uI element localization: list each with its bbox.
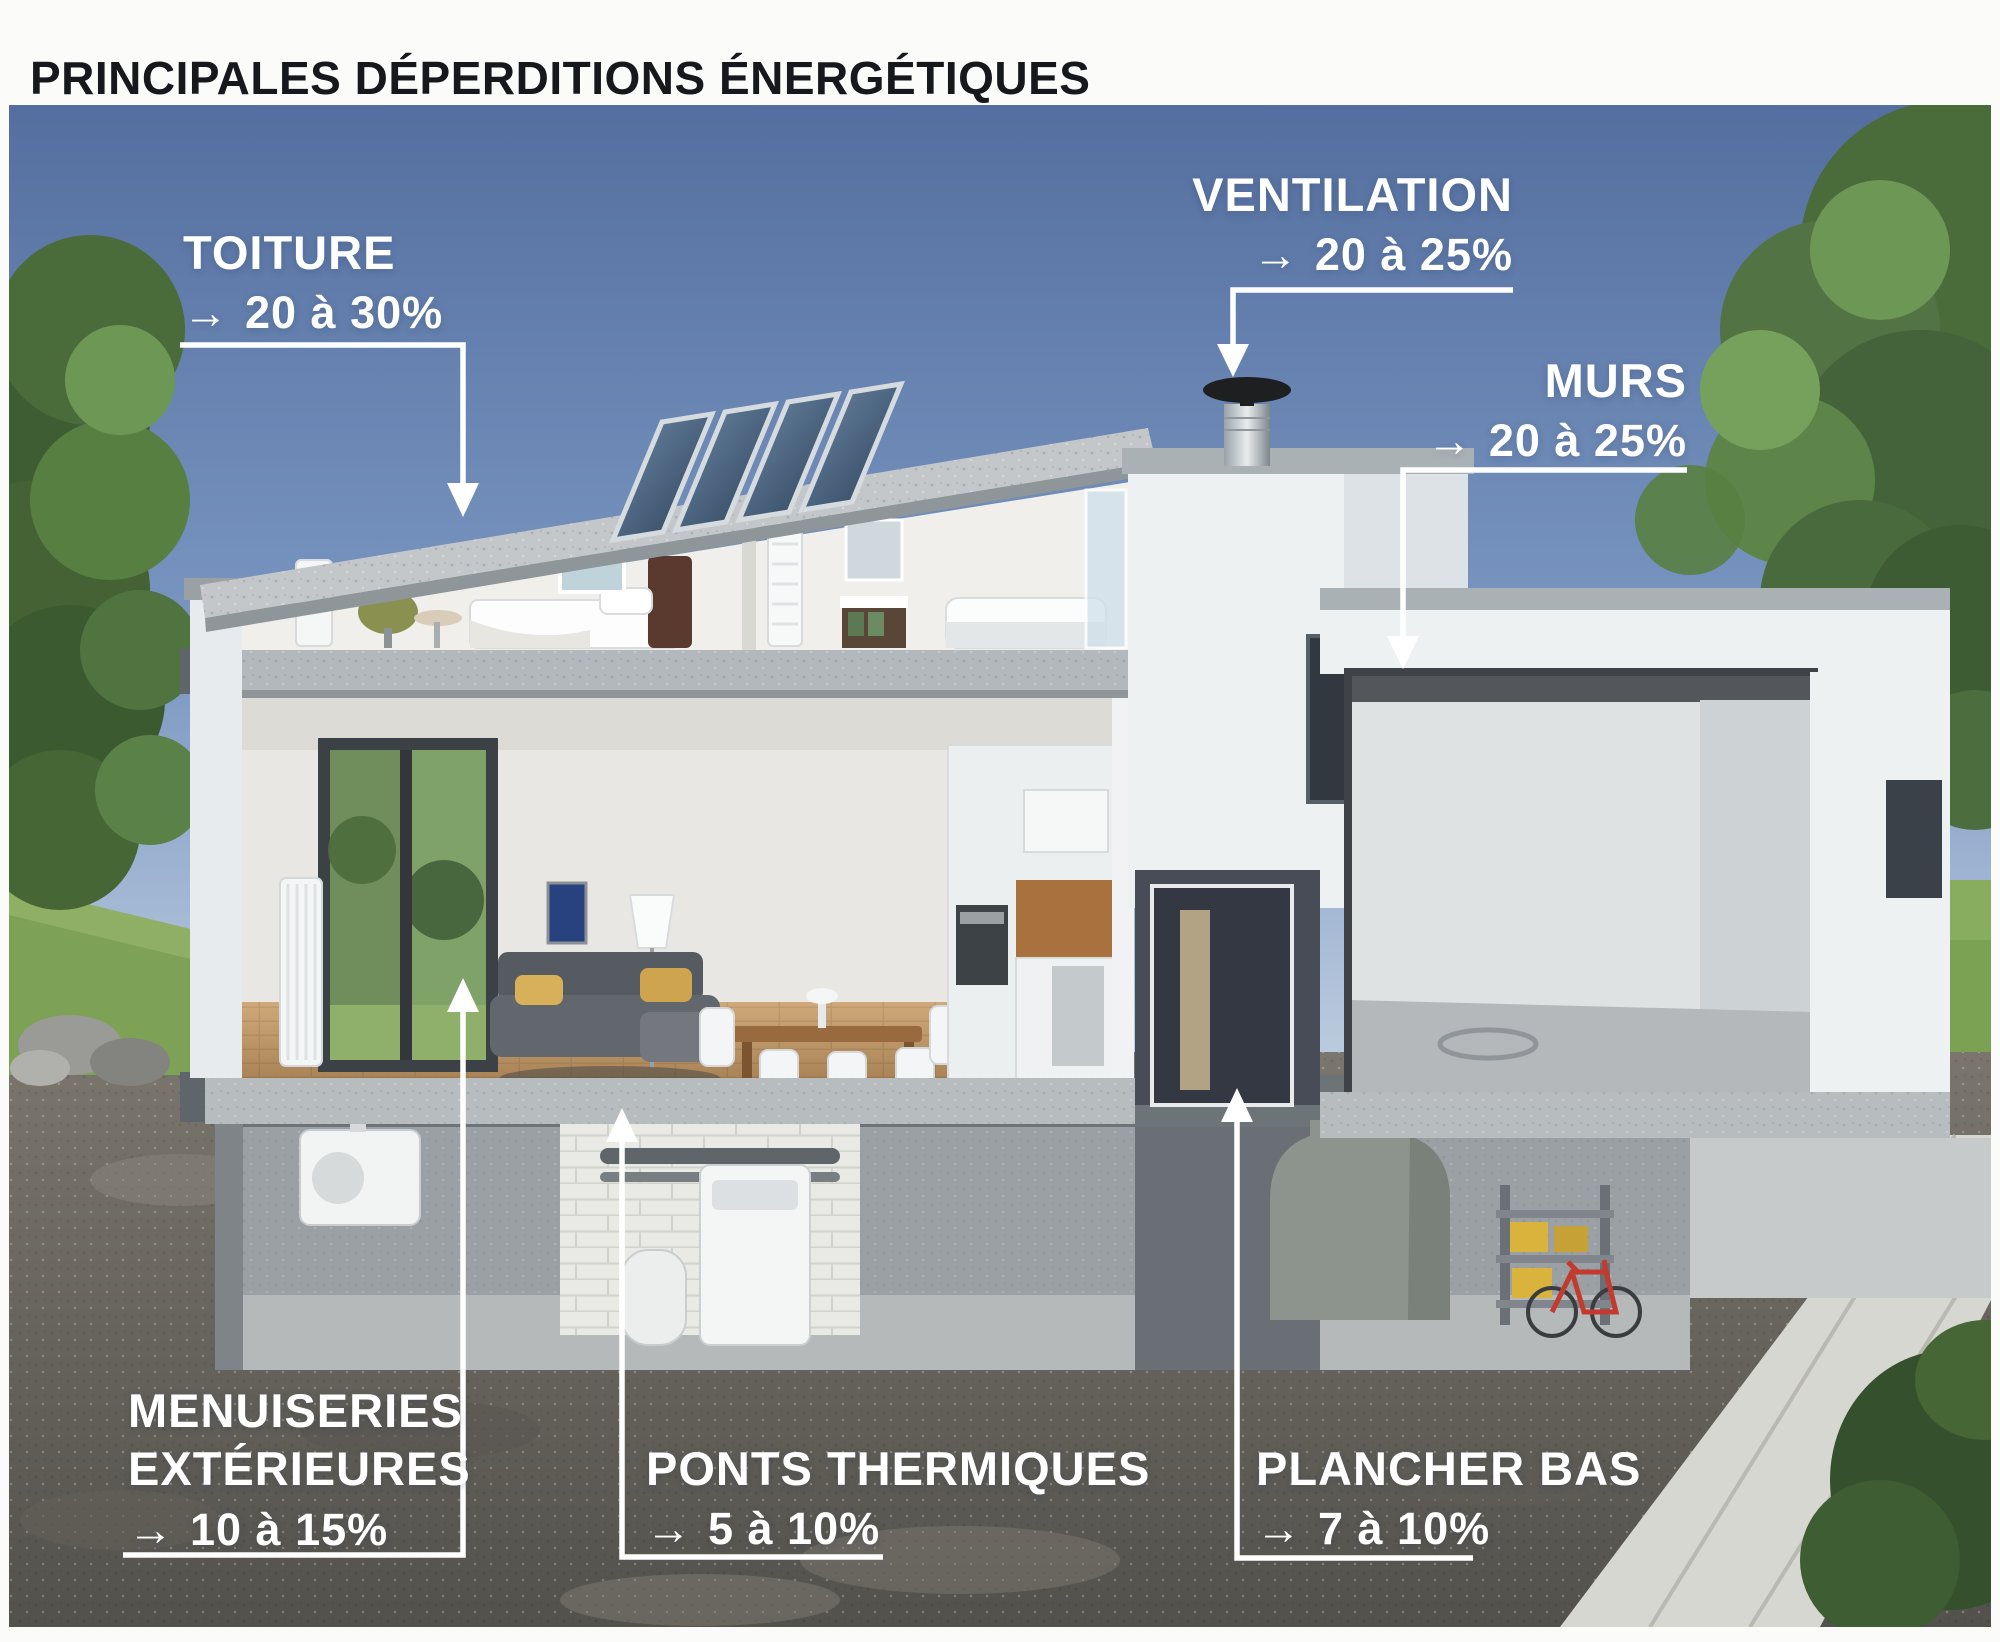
label-ponts-thermiques: PONTS THERMIQUES → 5 à 10%: [646, 1440, 1150, 1557]
label-ventilation-name: VENTILATION: [1192, 166, 1513, 224]
right-arrow-icon: →: [646, 1502, 692, 1557]
infographic-page: PRINCIPALES DÉPERDITIONS ÉNERGÉTIQUES: [0, 0, 2000, 1642]
label-murs-value: → 20 à 25%: [1427, 414, 1687, 469]
bathtub: [946, 598, 1106, 648]
label-murs: MURS → 20 à 25%: [1427, 352, 1687, 469]
label-ventilation-value: → 20 à 25%: [1192, 228, 1513, 283]
label-toiture-name: TOITURE: [183, 224, 443, 282]
label-murs-name: MURS: [1427, 352, 1687, 410]
right-arrow-icon: →: [128, 1503, 174, 1558]
right-arrow-icon: →: [183, 286, 229, 341]
label-ventilation: VENTILATION → 20 à 25%: [1192, 166, 1513, 283]
page-title: PRINCIPALES DÉPERDITIONS ÉNERGÉTIQUES: [30, 51, 1090, 105]
label-ponts-name: PONTS THERMIQUES: [646, 1440, 1150, 1498]
right-arrow-icon: →: [1256, 1502, 1302, 1557]
kitchen: [948, 745, 1130, 1080]
wall-picture: [548, 883, 586, 943]
water-cistern: [1270, 1120, 1450, 1320]
entry-door: [1135, 870, 1320, 1105]
label-plancher-bas: PLANCHER BAS → 7 à 10%: [1256, 1440, 1641, 1557]
right-arrow-icon: →: [1427, 414, 1473, 469]
right-arrow-icon: →: [1253, 228, 1299, 283]
label-toiture-value: → 20 à 30%: [183, 286, 443, 341]
label-plancher-value: → 7 à 10%: [1256, 1502, 1641, 1557]
radiator: [280, 878, 322, 1066]
label-menuiseries-exterieures: MENUISERIES EXTÉRIEURES → 10 à 15%: [128, 1382, 528, 1557]
left-exterior-wall: [184, 578, 248, 1078]
ground-floor: [215, 690, 1134, 1118]
label-plancher-name: PLANCHER BAS: [1256, 1440, 1641, 1498]
label-toiture: TOITURE → 20 à 30%: [183, 224, 443, 341]
label-menuiseries-value: → 10 à 15%: [128, 1503, 528, 1558]
label-menuiseries-name: MENUISERIES EXTÉRIEURES: [128, 1382, 528, 1499]
shower-glass: [1086, 490, 1126, 648]
garage-window: [1886, 780, 1942, 898]
sliding-glass-door: [318, 738, 498, 1072]
label-ponts-value: → 5 à 10%: [646, 1502, 1150, 1557]
